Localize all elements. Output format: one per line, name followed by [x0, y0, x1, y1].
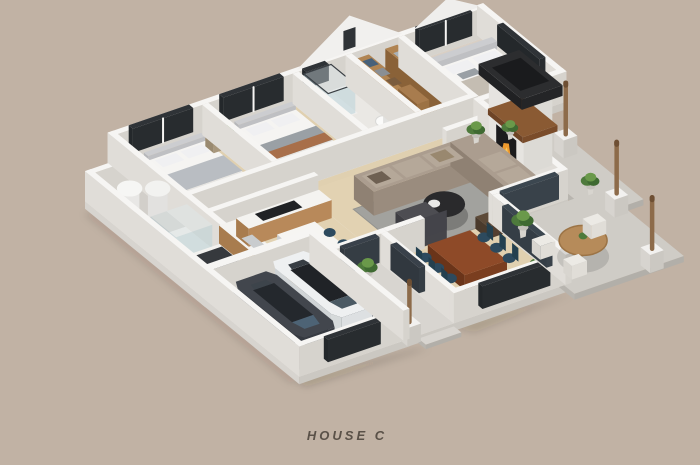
floor-plan-stage: HOUSE C — [0, 0, 700, 465]
caption-house-c: HOUSE C — [307, 428, 387, 443]
floor-plan-3d-render — [0, 0, 700, 465]
